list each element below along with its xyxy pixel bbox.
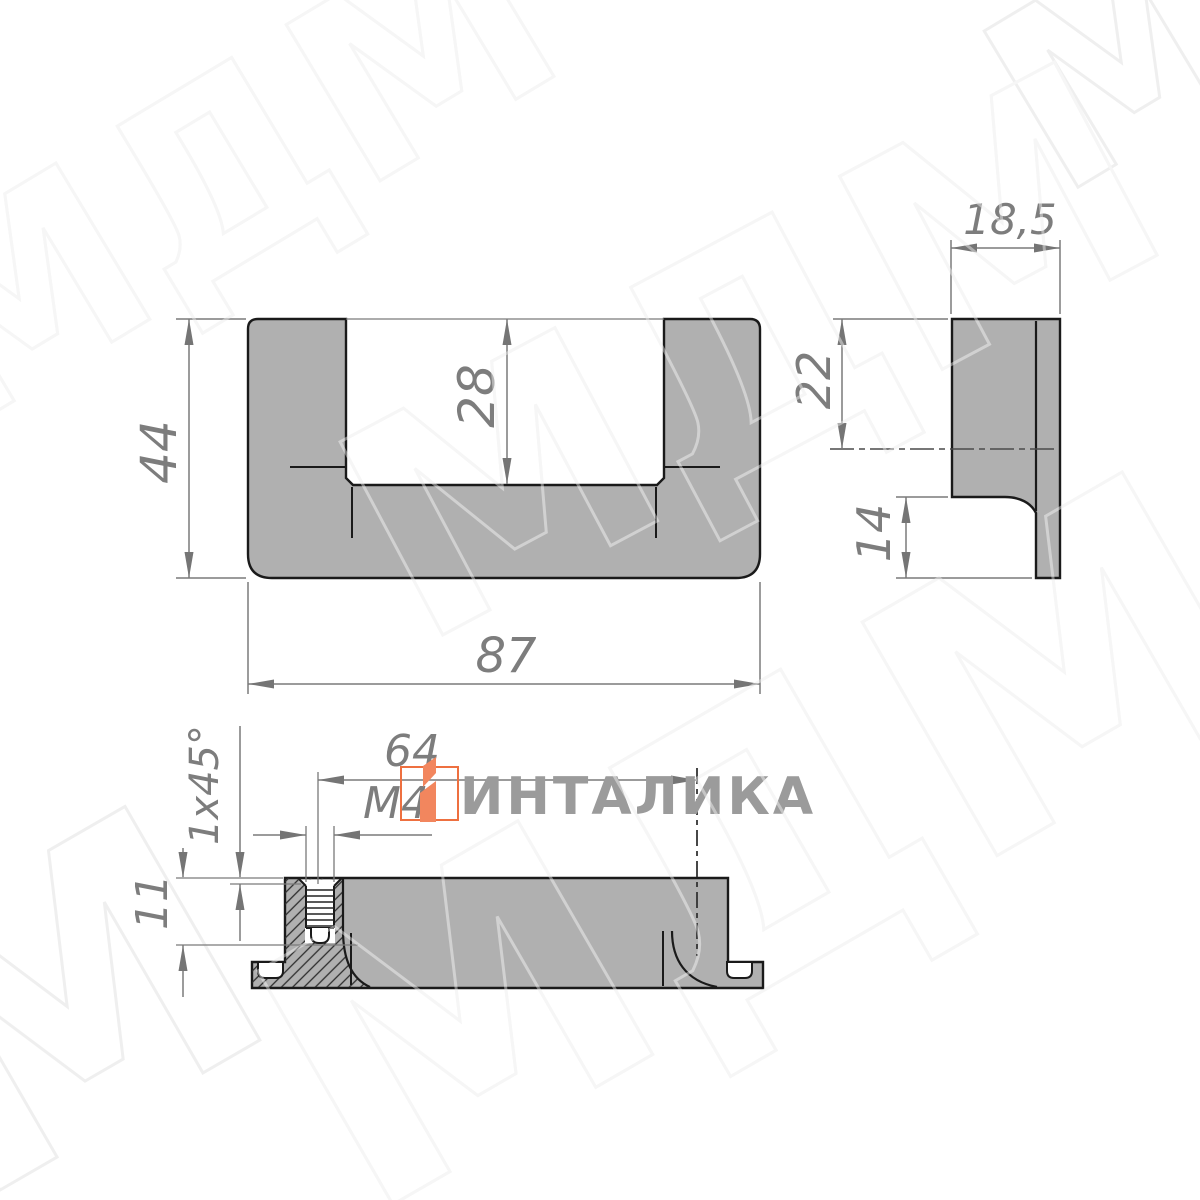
arrow xyxy=(280,831,306,840)
dim-label-11: 11 xyxy=(127,874,178,930)
arrow xyxy=(318,776,344,785)
arrow xyxy=(185,552,194,578)
arrow xyxy=(248,680,274,689)
dim-label-44: 44 xyxy=(130,420,188,484)
arrow xyxy=(236,852,245,878)
dim-label-chamfer: 1x45° xyxy=(182,725,228,845)
drawing-page: МДМ МДМ МДМ М М 44 28 87 xyxy=(0,0,1200,1200)
technical-drawing: МДМ МДМ МДМ М М 44 28 87 xyxy=(0,0,1200,1200)
